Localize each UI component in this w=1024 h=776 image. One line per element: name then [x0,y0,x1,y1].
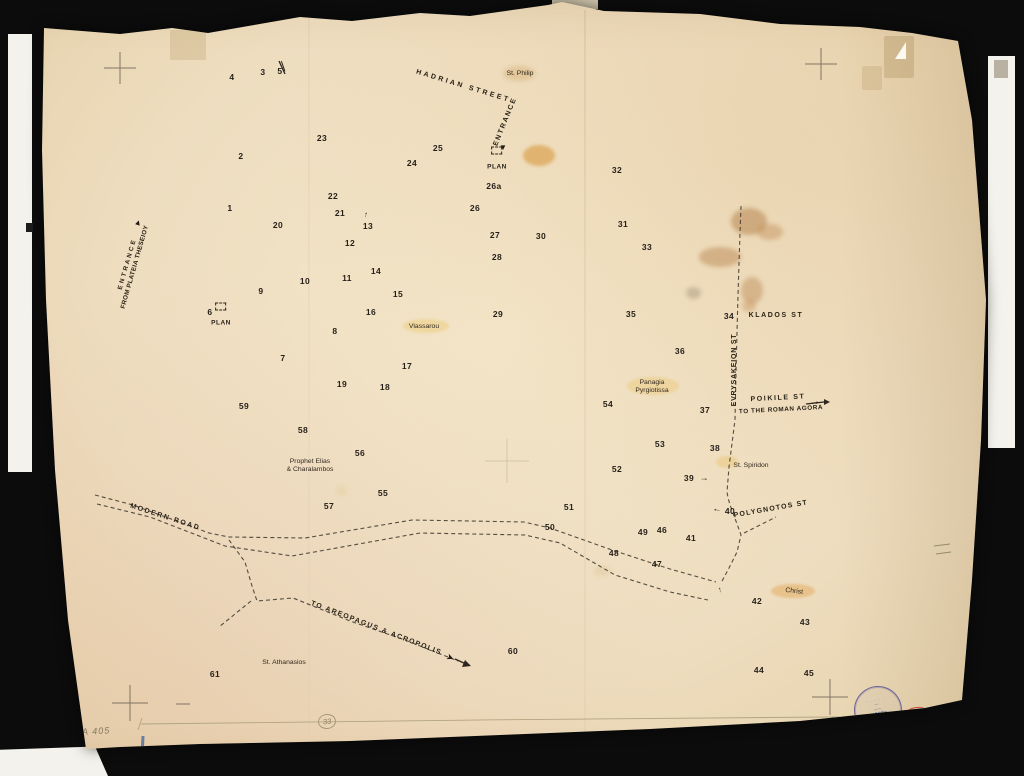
map-point-15: 15 [393,289,403,299]
map-point-58: 58 [298,425,308,435]
map-point-29: 29 [493,309,503,319]
plan-marker-entrance: PLAN [487,147,507,174]
map-point-16: 16 [366,307,376,317]
map-point-25: 25 [433,143,443,153]
map-point-61: 61 [210,669,220,679]
map-point-41: 41 [686,533,696,543]
map-point-45: 45 [804,668,814,678]
point-39-arrow-icon: → [700,474,709,483]
poikile-arrow-icon: → [809,396,821,408]
map-point-34: 34 [724,311,734,321]
point-40-arrow-icon: ← [712,504,722,514]
map-point-51: 51 [564,502,574,512]
map-point-31: 31 [618,219,628,229]
map-point-18: 18 [380,382,390,392]
catalog-number: A 405 [82,725,111,736]
map-point-33: 33 [642,242,652,252]
map-point-26a: 26a [486,181,501,191]
map-point-28: 28 [492,252,502,262]
map-point-52: 52 [612,464,622,474]
map-point-44: 44 [754,665,764,675]
map-point-26: 26 [470,203,480,213]
map-paper: 1234567891011121314151617181920212223242… [0,0,1024,776]
point-5-tick-mark: ╲ [280,63,286,72]
map-point-59: 59 [239,401,249,411]
map-point-60: 60 [508,646,518,656]
map-point-46: 46 [657,525,667,535]
map-point-8: 8 [332,326,337,336]
map-point-13: 13 [363,221,373,231]
map-photograph: 1234567891011121314151617181920212223242… [0,0,1024,776]
church-label-vlassarou: Vlassarou [409,323,439,331]
map-point-30: 30 [536,231,546,241]
blue-ink-tick [140,736,144,756]
plan-box-icon [491,147,502,155]
map-point-22: 22 [328,191,338,201]
map-point-54: 54 [603,399,613,409]
map-point-57: 57 [324,501,334,511]
paper-wrap: 1234567891011121314151617181920212223242… [0,0,1024,776]
map-point-1: 1 [227,203,232,213]
church-label-st-philip: St. Philip [507,70,534,78]
map-point-27: 27 [490,230,500,240]
modern-road-north-edge [95,495,716,582]
church-label-st-spiridon: St. Spiridon [733,462,768,470]
plan-marker-label: PLAN [211,320,231,327]
map-point-2: 2 [238,151,243,161]
street-label-evrysakeion: EVRYSAKEION ST [731,334,739,407]
map-point-17: 17 [402,361,412,371]
map-point-7: 7 [280,353,285,363]
map-point-37: 37 [700,405,710,415]
plan-marker-6: PLAN [211,303,231,330]
church-label-st-athanasios: St. Athanasios [262,659,305,667]
map-point-23: 23 [317,133,327,143]
map-point-20: 20 [273,220,283,230]
map-point-50: 50 [545,522,555,532]
map-point-11: 11 [342,273,352,283]
map-point-19: 19 [337,379,347,389]
map-point-47: 47 [652,559,662,569]
map-point-39: 39 [684,473,694,483]
map-point-35: 35 [626,309,636,319]
map-point-36: 36 [675,346,685,356]
map-point-10: 10 [300,276,310,286]
stamp-handwritten-number: 1310a [870,709,888,719]
map-point-53: 53 [655,439,665,449]
map-point-14: 14 [371,266,381,276]
map-point-3: 3 [260,67,265,77]
point-13-arrow-icon: ↑ [364,211,369,219]
map-point-12: 12 [345,238,355,248]
plan-marker-label: PLAN [487,164,507,171]
street-label-klados: KLADOS ST [749,312,804,320]
map-point-9: 9 [258,286,263,296]
map-point-48: 48 [609,548,619,558]
areopagus-road-west-edge [219,601,251,627]
map-point-32: 32 [612,165,622,175]
map-point-43: 43 [800,617,810,627]
map-point-55: 55 [378,488,388,498]
map-point-4: 4 [229,72,234,82]
map-point-49: 49 [638,527,648,537]
map-point-56: 56 [355,448,365,458]
map-point-38: 38 [710,443,720,453]
plan-box-icon [215,303,226,311]
church-label-prophet-elias: Prophet Elias& Charalambos [287,458,334,474]
church-label-panagia-pyrgiotissa: PanagiaPyrgiotissa [635,379,668,395]
stamp-bottom-text: ATHENS [869,715,891,725]
map-point-24: 24 [407,158,417,168]
map-point-42: 42 [752,596,762,606]
polygnotos-spur [744,517,776,533]
map-point-21: 21 [335,208,345,218]
